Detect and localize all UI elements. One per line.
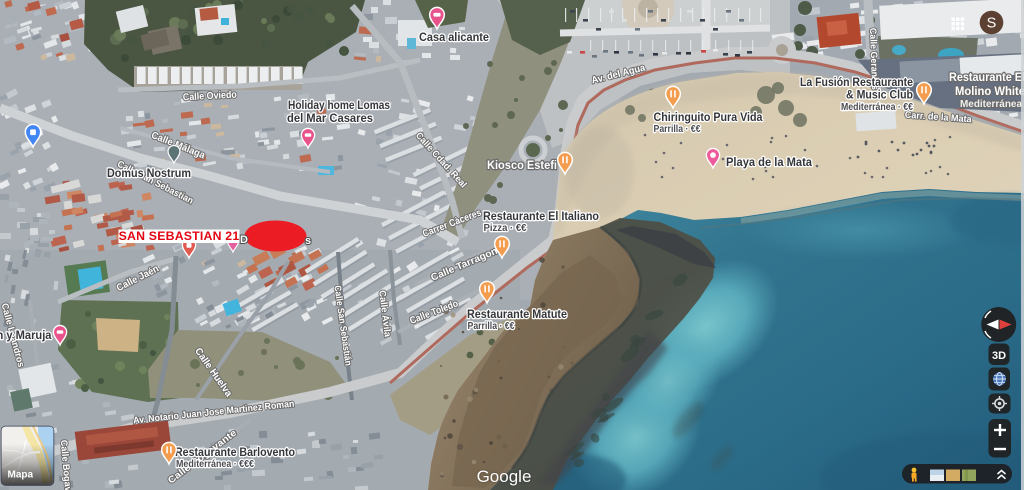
svg-text:& Music Club: & Music Club xyxy=(846,88,913,102)
svg-text:SAN SEBASTIAN 21: SAN SEBASTIAN 21 xyxy=(119,229,240,243)
svg-text:Restaurante El Italiano: Restaurante El Italiano xyxy=(483,209,599,223)
svg-text:Kiosco Estefi: Kiosco Estefi xyxy=(487,158,557,172)
svg-text:Restaurante El: Restaurante El xyxy=(949,70,1024,84)
svg-text:n y Maruja: n y Maruja xyxy=(0,328,52,342)
svg-text:Restaurante Matute: Restaurante Matute xyxy=(467,307,567,321)
svg-text:Mapa: Mapa xyxy=(8,470,34,481)
svg-text:Parrilla · €€: Parrilla · €€ xyxy=(654,124,701,135)
svg-text:Holiday home Lomas: Holiday home Lomas xyxy=(288,98,390,112)
svg-text:Restaurante Barlovento: Restaurante Barlovento xyxy=(175,445,295,459)
svg-text:Mediterránea · €€€: Mediterránea · €€€ xyxy=(176,459,254,470)
svg-text:Domus Nostrum: Domus Nostrum xyxy=(107,166,191,180)
svg-text:S: S xyxy=(987,16,997,32)
svg-text:Playa de la Mata: Playa de la Mata xyxy=(726,155,812,169)
svg-text:Parrilla · €€: Parrilla · €€ xyxy=(468,321,515,332)
svg-text:Molino White: Molino White xyxy=(955,84,1024,98)
svg-text:Pizza · €€: Pizza · €€ xyxy=(484,223,527,234)
svg-text:3D: 3D xyxy=(992,350,1006,362)
svg-text:D: D xyxy=(240,234,248,246)
svg-text:del Mar Casares: del Mar Casares xyxy=(287,111,373,125)
svg-text:Google: Google xyxy=(477,467,532,486)
svg-text:Casa alicante: Casa alicante xyxy=(419,30,489,44)
svg-text:Chiringuito Pura Vida: Chiringuito Pura Vida xyxy=(654,110,763,124)
svg-text:s: s xyxy=(305,235,311,247)
svg-text:Mediterránea · €€: Mediterránea · €€ xyxy=(841,102,913,113)
svg-text:Mediterránea: Mediterránea xyxy=(960,99,1022,110)
